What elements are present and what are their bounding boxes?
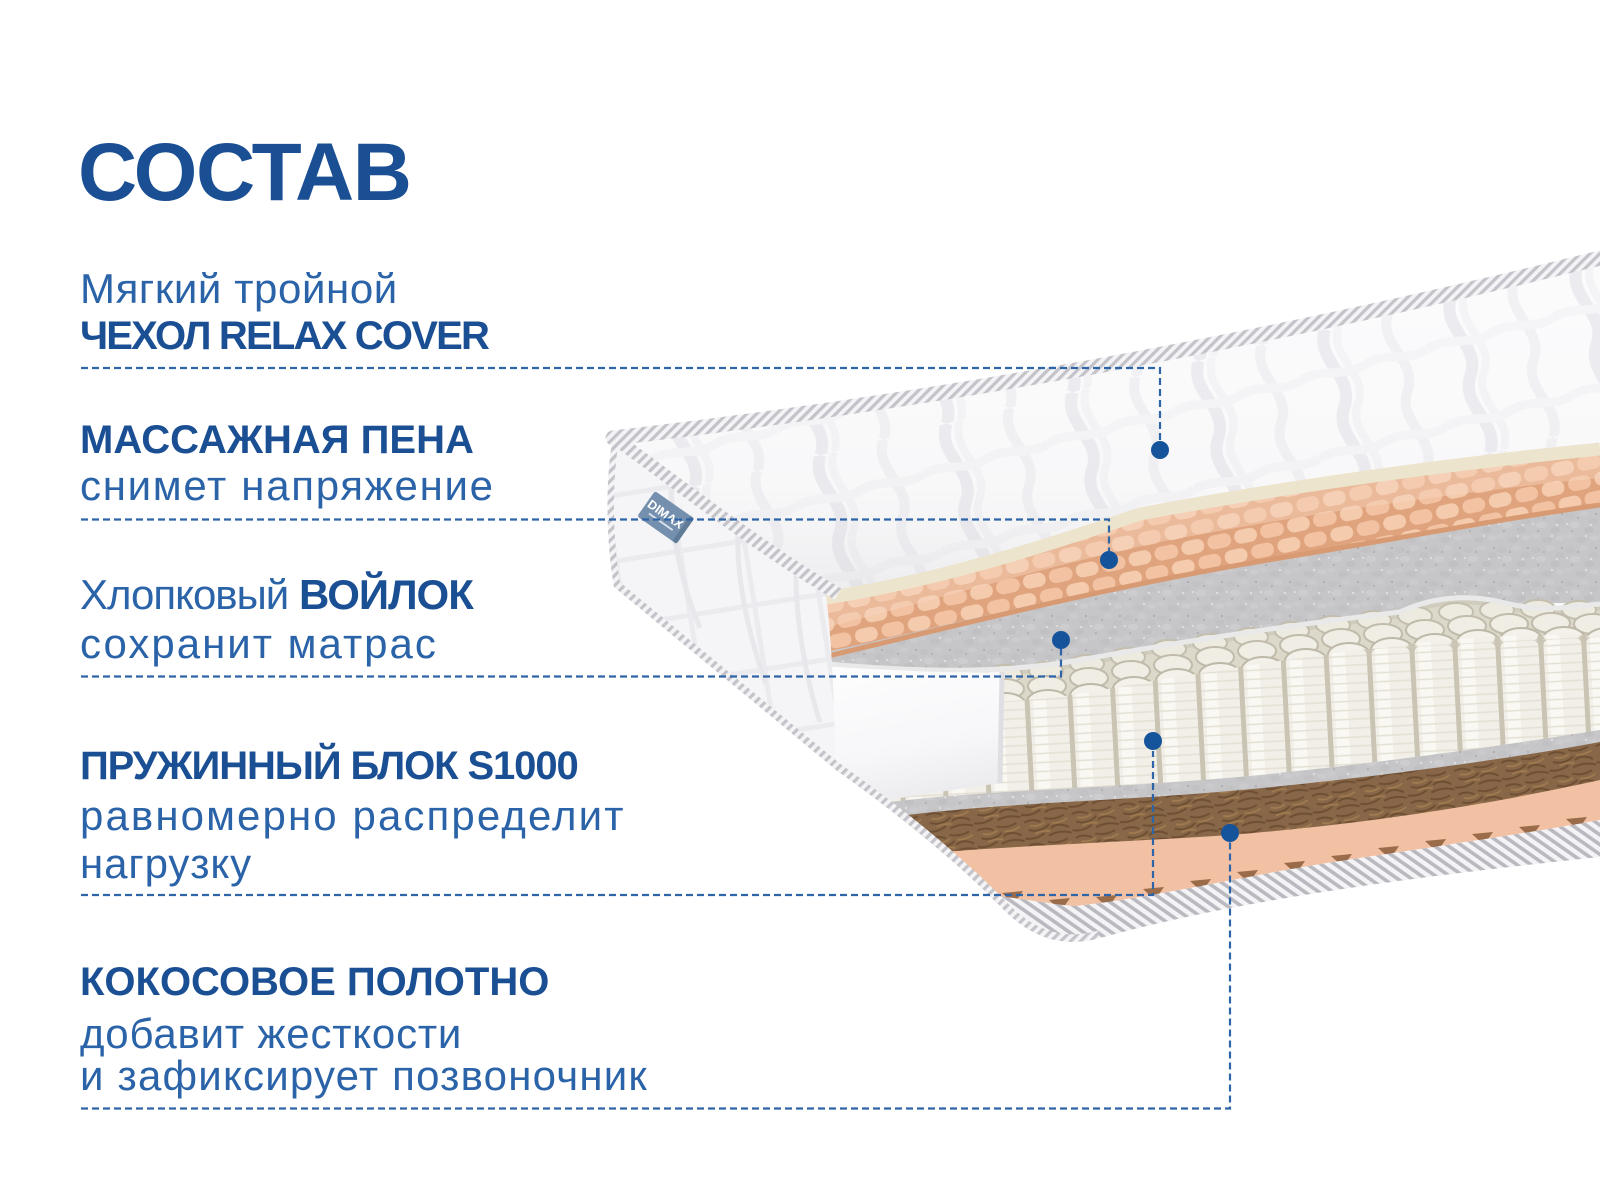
svg-text:СОСТАВ: СОСТАВ <box>78 127 411 218</box>
svg-text:Хлопковый ВОЙЛОК: Хлопковый ВОЙЛОК <box>80 570 474 618</box>
svg-text:КОКОСОВОЕ ПОЛОТНО: КОКОСОВОЕ ПОЛОТНО <box>80 960 549 1004</box>
svg-text:добавит жесткости: добавит жесткости <box>80 1010 462 1057</box>
svg-text:Мягкий тройной: Мягкий тройной <box>80 265 398 312</box>
svg-text:ПРУЖИННЫЙ БЛОК S1000: ПРУЖИННЫЙ БЛОК S1000 <box>80 742 578 788</box>
svg-text:снимет напряжение: снимет напряжение <box>80 462 495 509</box>
svg-text:сохранит матрас: сохранит матрас <box>80 620 438 667</box>
svg-text:и зафиксирует позвоночник: и зафиксирует позвоночник <box>80 1052 648 1099</box>
svg-text:нагрузку: нагрузку <box>80 840 252 887</box>
svg-text:ЧЕХОЛ RELAX COVER: ЧЕХОЛ RELAX COVER <box>80 314 490 358</box>
svg-text:равномерно распределит: равномерно распределит <box>80 792 626 839</box>
svg-text:МАССАЖНАЯ ПЕНА: МАССАЖНАЯ ПЕНА <box>80 418 474 462</box>
